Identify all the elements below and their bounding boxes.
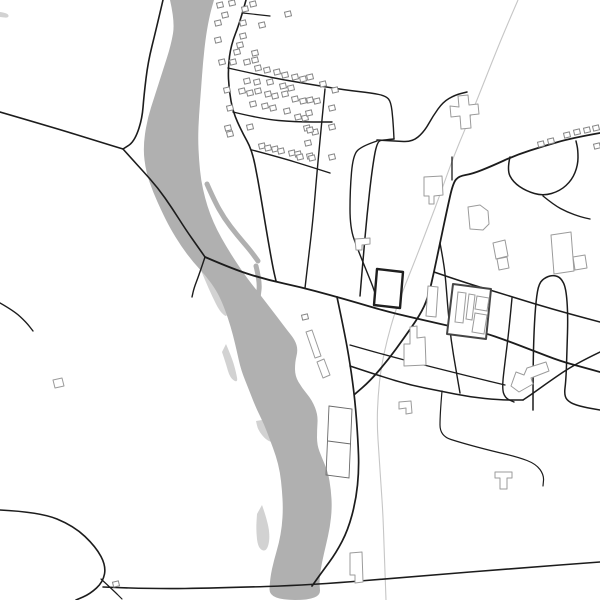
house [271,93,278,99]
house [283,108,290,114]
house [264,145,271,151]
house [269,105,276,111]
house [547,138,554,144]
house [246,90,253,96]
house [563,132,570,138]
house [253,79,260,85]
house [214,20,221,26]
house [214,37,221,43]
building-riverside-slim-b [317,359,330,378]
house [583,127,590,133]
house [249,101,256,107]
parcel-layer [326,406,352,478]
house [221,12,228,18]
house [287,85,294,91]
house [313,98,320,104]
house [229,59,236,65]
house [592,125,599,131]
river-layer [144,0,332,600]
house [266,79,273,85]
house [216,2,223,8]
house [236,42,243,48]
house [251,50,258,56]
road-top-stub-street [243,13,270,16]
building-bottom-center-building [350,552,363,583]
house [294,114,301,120]
house [279,83,286,89]
house [246,124,253,130]
house [305,110,312,116]
building-angled-building-se [511,362,549,392]
house [299,98,306,104]
house [254,65,261,71]
house [304,140,311,146]
house [573,129,580,135]
house [226,105,233,111]
building-ne-building-a [493,240,508,259]
central-dark-block [374,269,403,308]
house [243,59,250,65]
house [277,148,284,154]
house [223,87,230,93]
house [239,33,246,39]
house [261,103,268,109]
house [228,0,235,6]
building-riverside-slim-a [306,330,321,358]
house [251,57,258,63]
house [273,69,280,75]
road-north-residential-road [228,0,276,281]
building-l-building-center [355,238,370,250]
river-sandbank [222,344,237,381]
house [308,155,315,161]
riverside-parcel-divider [328,441,351,444]
road-west-left-arc [0,303,33,331]
river-sandbank [0,12,9,18]
road-residential-street-2 [233,112,332,122]
house [218,59,225,65]
building-t-building [495,472,512,489]
road-grid-street-mid [350,345,505,385]
house [239,20,246,26]
house [593,143,600,149]
market-block-inner-building [475,296,489,311]
market-block-inner-building [472,313,487,334]
building-small-l-building [399,401,412,414]
building-ne-building-annex [573,255,587,270]
house [284,11,291,17]
house [233,49,240,55]
house [264,91,271,97]
road-bottom-left-curve [0,510,105,600]
house [243,78,250,84]
house [224,125,231,131]
house [328,154,335,160]
building-southwest-square [53,378,64,388]
building-church [450,95,479,129]
house [319,81,326,87]
house [291,74,298,80]
road-loop-lane-tail [543,196,590,219]
building-fan-building [468,205,489,230]
house [328,105,335,111]
house [263,67,270,73]
house [112,581,119,587]
river-side-channel [256,266,259,298]
house [331,87,338,93]
road-avenue-mid-b [350,141,378,306]
house [281,91,288,97]
building-slim-building-center [426,286,438,317]
road-loop-lane [509,141,579,195]
house [258,22,265,28]
river [144,0,332,600]
house [306,97,313,103]
house [306,127,313,133]
road-west-road [0,112,123,149]
house [226,131,233,137]
house [301,314,308,320]
house [328,124,335,130]
house [238,88,245,94]
house [281,72,288,78]
map-canvas[interactable] [0,0,600,600]
river-sandbank [256,505,269,551]
building-ne-building-large [551,232,574,274]
building-ne-building-b [497,257,509,270]
house [299,76,306,82]
house [537,141,544,147]
house [254,88,261,94]
road-hairpin-street [533,276,600,410]
house [296,154,303,160]
house [306,74,313,80]
house [241,6,248,12]
building-flag-building-north [424,176,443,204]
house [249,1,256,7]
house [291,96,298,102]
road-southeast-squiggle [440,391,544,486]
